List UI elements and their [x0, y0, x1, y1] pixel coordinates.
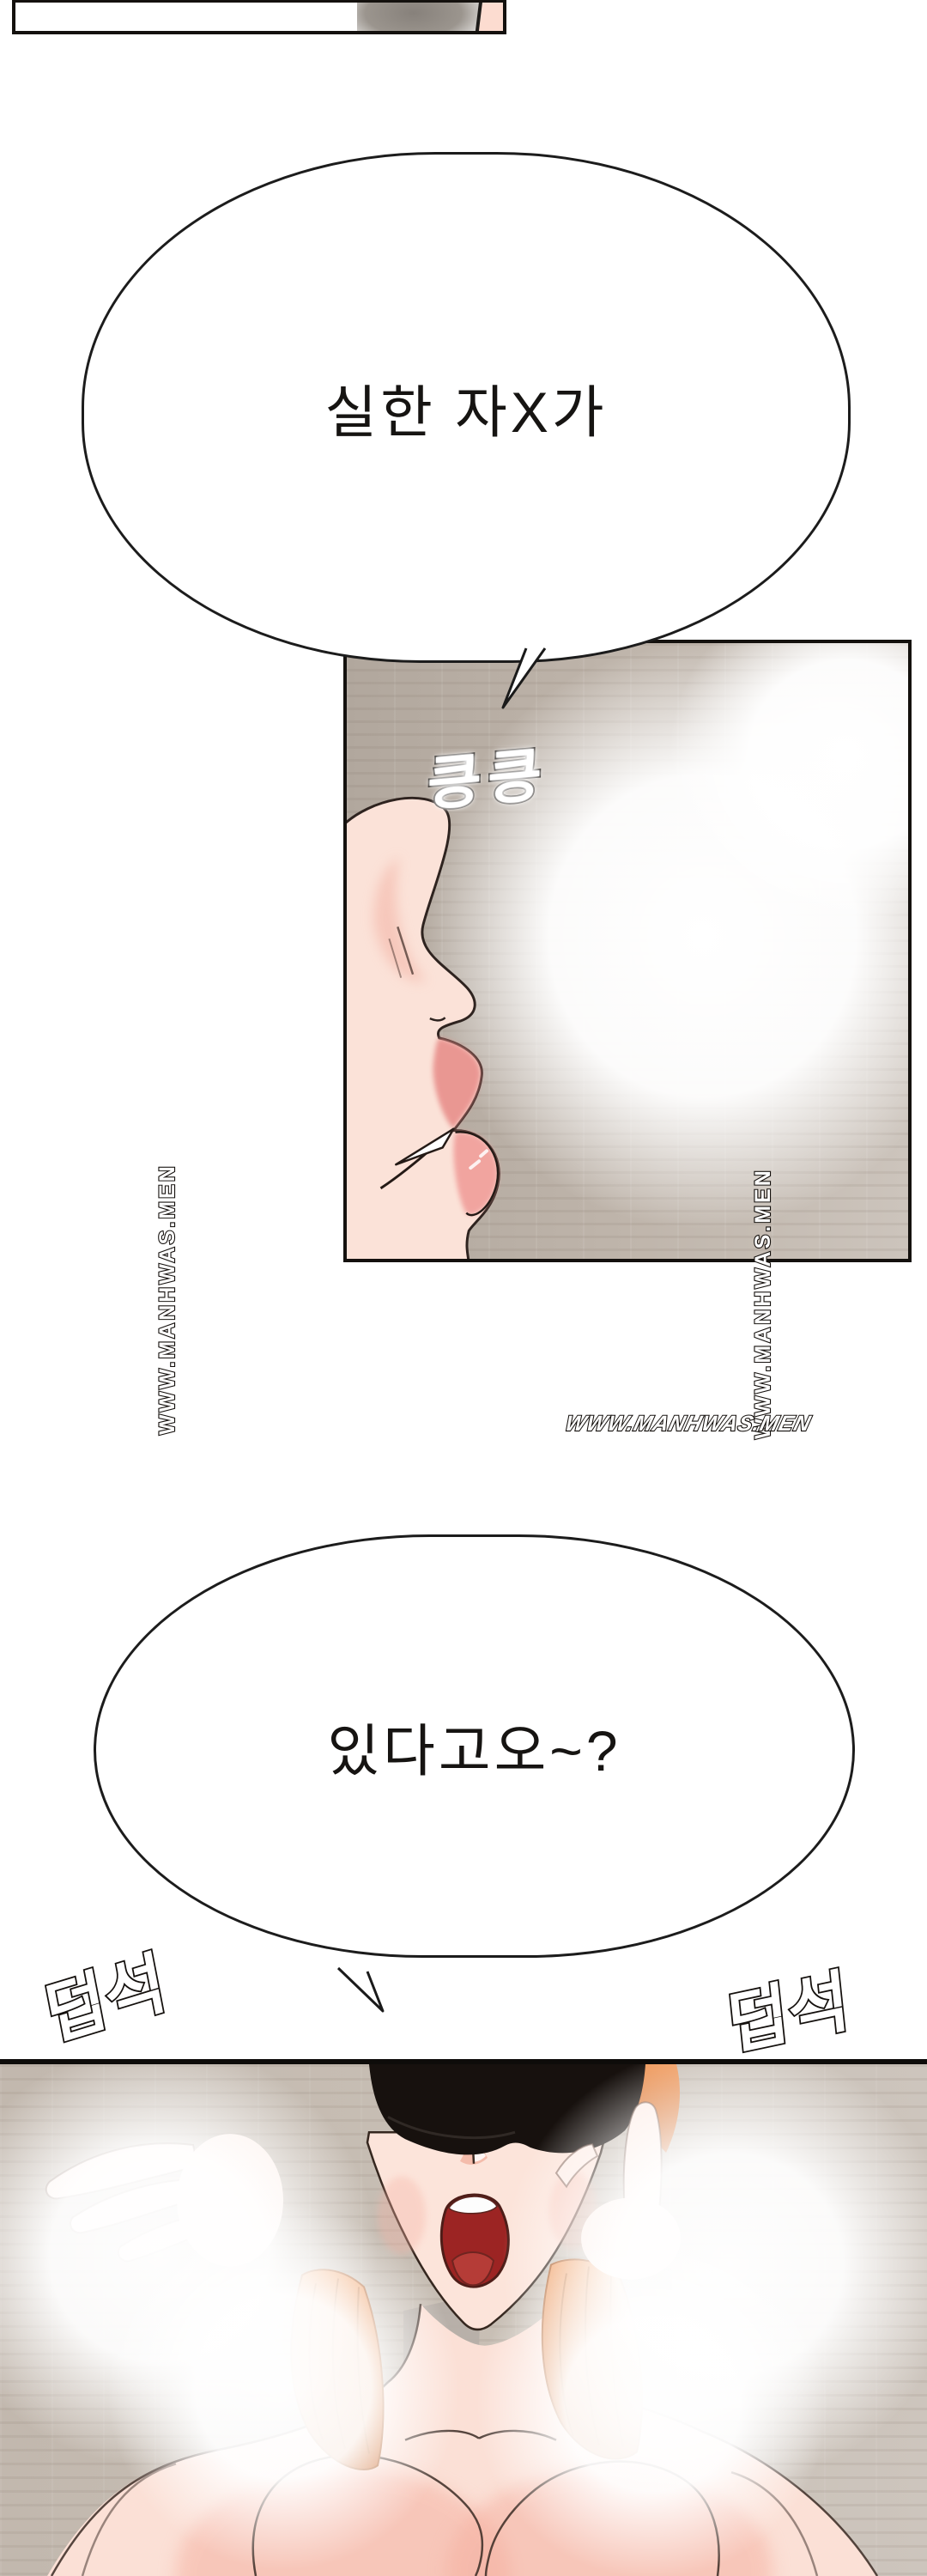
- webtoon-page: 실한 자X가 있다고오~? 킁킁 덥석 덥석 WWW.MANHWAS.MEN W…: [0, 0, 927, 2576]
- gray-shape: [357, 0, 482, 34]
- speech-bubble-1: 실한 자X가: [82, 152, 851, 663]
- face-closeup-panel: [343, 640, 912, 1262]
- sfx-grab-left: 덥석: [36, 1929, 173, 2060]
- watermark-vertical-left: WWW.MANHWAS.MEN: [155, 1138, 185, 1435]
- speech-bubble-2-tail: [333, 1965, 390, 2018]
- blindfold-figure-art: [0, 2064, 927, 2576]
- speech-bubble-2-text: 있다고오~?: [327, 1705, 621, 1788]
- top-cropped-panel: [12, 0, 506, 34]
- sfx-sniff: 킁킁: [427, 726, 548, 823]
- sfx-grab-right: 덥석: [723, 1947, 853, 2069]
- speech-bubble-1-text: 실한 자X가: [324, 367, 607, 449]
- skin-shape: [479, 3, 503, 31]
- watermark-horizontal: WWW.MANHWAS.MEN: [562, 1412, 814, 1437]
- blindfold-figure-panel: [0, 2059, 927, 2576]
- speech-bubble-2: 있다고오~?: [94, 1534, 855, 1958]
- watermark-vertical-right: WWW.MANHWAS.MEN: [751, 1142, 780, 1439]
- speech-bubble-1-tail: [498, 646, 549, 713]
